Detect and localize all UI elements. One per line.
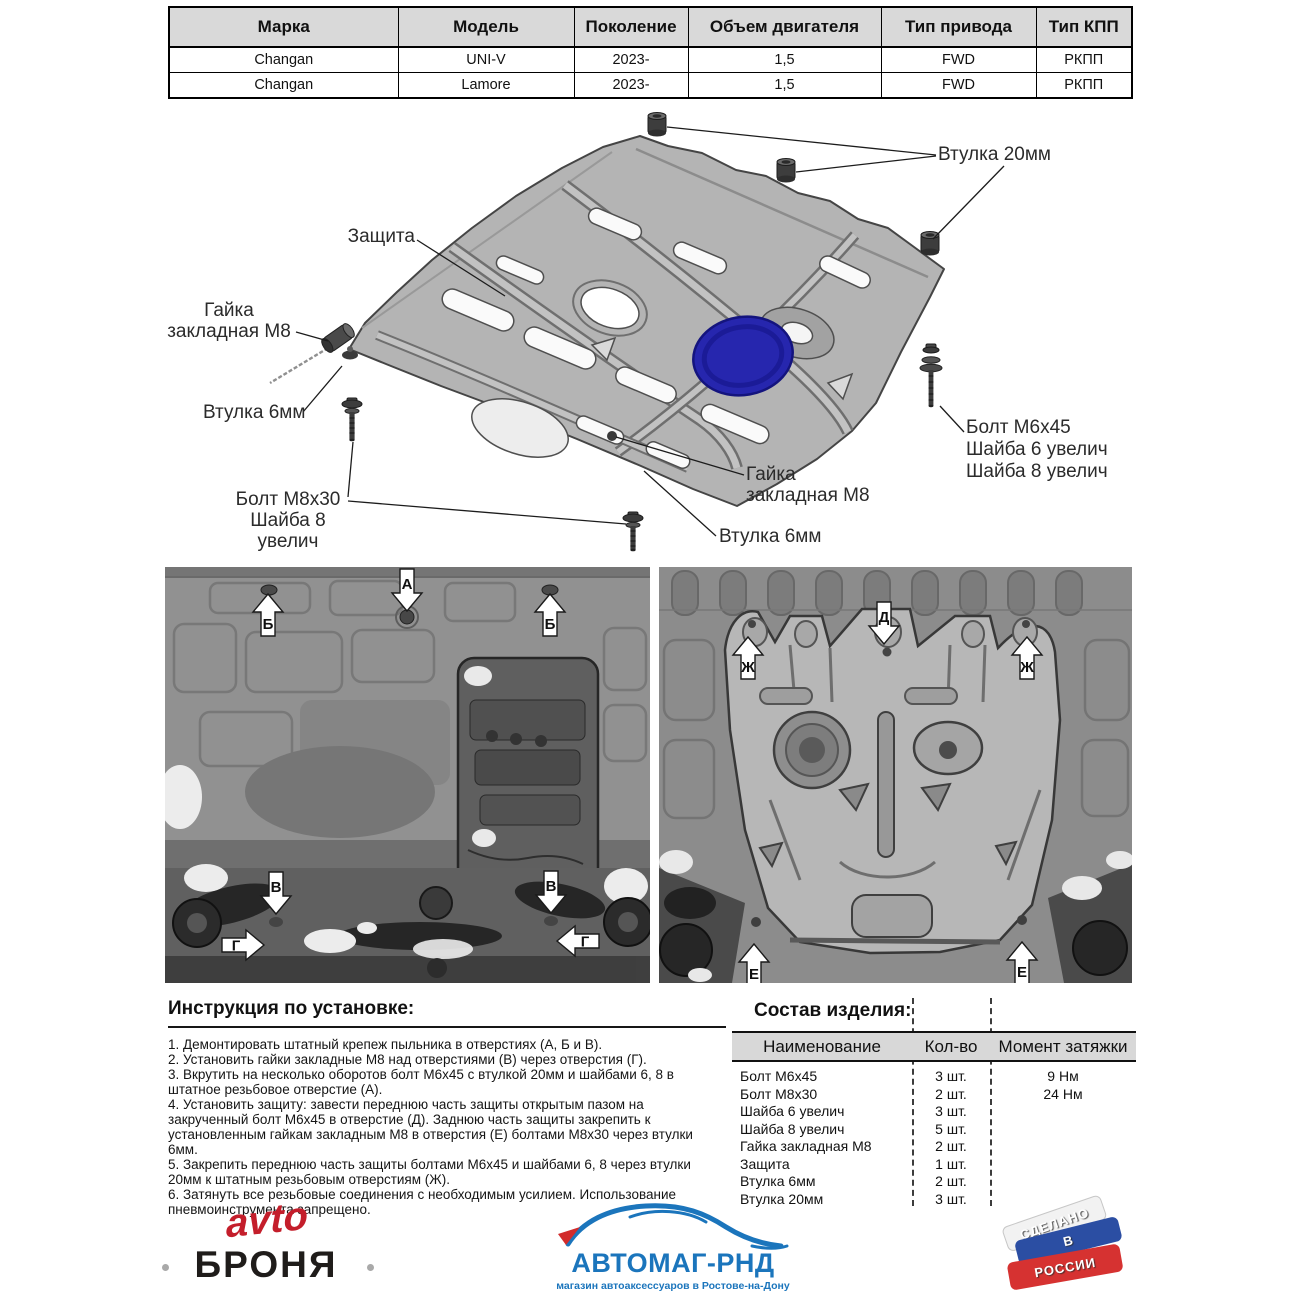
col-header-torque: Момент затяжки: [990, 1033, 1136, 1060]
svg-text:Б: Б: [263, 616, 274, 633]
svg-text:В: В: [271, 879, 282, 896]
part-torque: [990, 1156, 1136, 1174]
part-torque: 24 Нм: [990, 1086, 1136, 1104]
cell: Lamore: [398, 73, 574, 99]
col-header-marka: Марка: [169, 7, 398, 47]
part-qty: 1 шт.: [912, 1156, 990, 1174]
label-bolt-m6x45: Болт М6х45 Шайба 6 увелич Шайба 8 увелич: [966, 417, 1141, 483]
table-row: Changan UNI-V 2023- 1,5 FWD РКПП: [169, 47, 1132, 73]
gearbox-opening: [458, 658, 598, 893]
label-bolt-m8x30: Болт М8х30 Шайба 8 увелич: [228, 489, 348, 552]
instruction-step: 3. Вкрутить на несколько оборотов болт М…: [168, 1067, 726, 1097]
svg-text:Д: Д: [879, 609, 890, 626]
part-qty: 3 шт.: [912, 1068, 990, 1086]
label-gayka-zakladnaya-bottom: Гайка закладная М8: [746, 464, 886, 506]
bushing-20mm-icon: [648, 113, 666, 137]
cell: Changan: [169, 47, 398, 73]
avtobronya-wordmark: БРОНЯ: [168, 1244, 364, 1286]
cell: FWD: [881, 47, 1036, 73]
fitment-table: Марка Модель Поколение Объем двигателя Т…: [168, 6, 1133, 99]
avtomag-wordmark: АВТОМАГ-РНД: [548, 1248, 798, 1279]
parts-header-row: Наименование Кол-во Момент затяжки: [732, 1031, 1136, 1062]
nut-hole: [607, 431, 617, 441]
svg-text:Г: Г: [232, 938, 241, 955]
part-qty: 2 шт.: [912, 1138, 990, 1156]
part-qty: 2 шт.: [912, 1086, 990, 1104]
bolt-m6x45-icon: [920, 344, 942, 407]
parts-row: Болт М6х45 3 шт. 9 Нм: [732, 1068, 1136, 1086]
cell: 2023-: [574, 73, 688, 99]
svg-text:Г: Г: [581, 934, 590, 951]
col-header-kpp: Тип КПП: [1036, 7, 1132, 47]
label-vtulka-6mm-bottom: Втулка 6мм: [719, 526, 829, 547]
bushing-20mm-icon: [777, 159, 795, 183]
part-torque: [990, 1173, 1136, 1191]
part-torque: 9 Нм: [990, 1068, 1136, 1086]
part-torque: [990, 1138, 1136, 1156]
avtomag-subtitle: магазин автоаксессуаров в Ростове-на-Дон…: [548, 1280, 798, 1292]
part-qty: 2 шт.: [912, 1173, 990, 1191]
label-zashchita: Защита: [290, 226, 415, 247]
label-vtulka-6mm-left: Втулка 6мм: [203, 402, 313, 423]
bolt-m8x30-icon: [342, 398, 362, 441]
cell: 2023-: [574, 47, 688, 73]
cell: FWD: [881, 73, 1036, 99]
logo-dot: [367, 1264, 374, 1271]
col-header-obem: Объем двигателя: [688, 7, 881, 47]
instruction-step: 2. Установить гайки закладные М8 над отв…: [168, 1052, 726, 1067]
svg-text:Ж: Ж: [740, 659, 755, 676]
parts-row: Шайба 8 увелич 5 шт.: [732, 1121, 1136, 1139]
cell: Changan: [169, 73, 398, 99]
svg-text:Е: Е: [1017, 964, 1027, 981]
logo-dot: [162, 1264, 169, 1271]
avtomag-logo: АВТОМАГ-РНД магазин автоаксессуаров в Ро…: [548, 1200, 798, 1296]
parts-row: Шайба 6 увелич 3 шт.: [732, 1103, 1136, 1121]
fitment-header-row: Марка Модель Поколение Объем двигателя Т…: [169, 7, 1132, 47]
col-header-name: Наименование: [732, 1033, 912, 1060]
part-qty: 3 шт.: [912, 1103, 990, 1121]
col-header-model: Модель: [398, 7, 574, 47]
photo-underbody-after: Д Ж Ж Е Е: [659, 567, 1132, 983]
svg-text:А: А: [402, 576, 413, 593]
cell: 1,5: [688, 73, 881, 99]
car-outline-icon: [556, 1200, 790, 1252]
installed-plate: [725, 609, 1060, 953]
svg-text:Е: Е: [749, 966, 759, 983]
part-qty: 5 шт.: [912, 1121, 990, 1139]
parts-row: Втулка 6мм 2 шт.: [732, 1173, 1136, 1191]
avtobronya-logo: avto БРОНЯ: [168, 1202, 364, 1294]
instruction-sheet: Марка Модель Поколение Объем двигателя Т…: [0, 0, 1300, 1300]
parts-title: Состав изделия:: [754, 1000, 911, 1022]
instruction-step: 1. Демонтировать штатный крепеж пыльника…: [168, 1037, 726, 1052]
col-header-pokolenie: Поколение: [574, 7, 688, 47]
svg-text:Ж: Ж: [1019, 659, 1034, 676]
parts-row: Защита 1 шт.: [732, 1156, 1136, 1174]
part-name: Защита: [732, 1156, 912, 1174]
part-name: Шайба 6 увелич: [732, 1103, 912, 1121]
svg-text:В: В: [546, 878, 557, 895]
bolt-m8x30-icon: [623, 512, 643, 551]
part-name: Шайба 8 увелич: [732, 1121, 912, 1139]
parts-row: Гайка закладная М8 2 шт.: [732, 1138, 1136, 1156]
cell: РКПП: [1036, 73, 1132, 99]
cell: UNI-V: [398, 47, 574, 73]
part-torque: [990, 1103, 1136, 1121]
label-gayka-zakladnaya-left: Гайка закладная М8: [163, 300, 295, 342]
table-row: Changan Lamore 2023- 1,5 FWD РКПП: [169, 73, 1132, 99]
parts-row: Болт М8х30 2 шт. 24 Нм: [732, 1086, 1136, 1104]
col-header-qty: Кол-во: [912, 1033, 990, 1060]
parts-list: Состав изделия: Наименование Кол-во Моме…: [732, 998, 1136, 1210]
instruction-step: 5. Закрепить переднюю часть защиты болта…: [168, 1157, 726, 1187]
part-name: Гайка закладная М8: [732, 1138, 912, 1156]
part-torque: [990, 1121, 1136, 1139]
part-name: Втулка 6мм: [732, 1173, 912, 1191]
photo-underbody-before: Б А Б В В Г Г: [165, 567, 650, 983]
cell: 1,5: [688, 47, 881, 73]
installation-instructions: Инструкция по установке: 1. Демонтироват…: [168, 998, 726, 1217]
label-vtulka-20mm: Втулка 20мм: [938, 144, 1108, 165]
col-header-privod: Тип привода: [881, 7, 1036, 47]
instructions-title: Инструкция по установке:: [168, 998, 726, 1028]
part-name: Болт М6х45: [732, 1068, 912, 1086]
part-name: Болт М8х30: [732, 1086, 912, 1104]
part-qty: 3 шт.: [912, 1191, 990, 1209]
svg-text:Б: Б: [545, 616, 556, 633]
instruction-step: 4. Установить защиту: завести переднюю ч…: [168, 1097, 726, 1157]
cell: РКПП: [1036, 47, 1132, 73]
